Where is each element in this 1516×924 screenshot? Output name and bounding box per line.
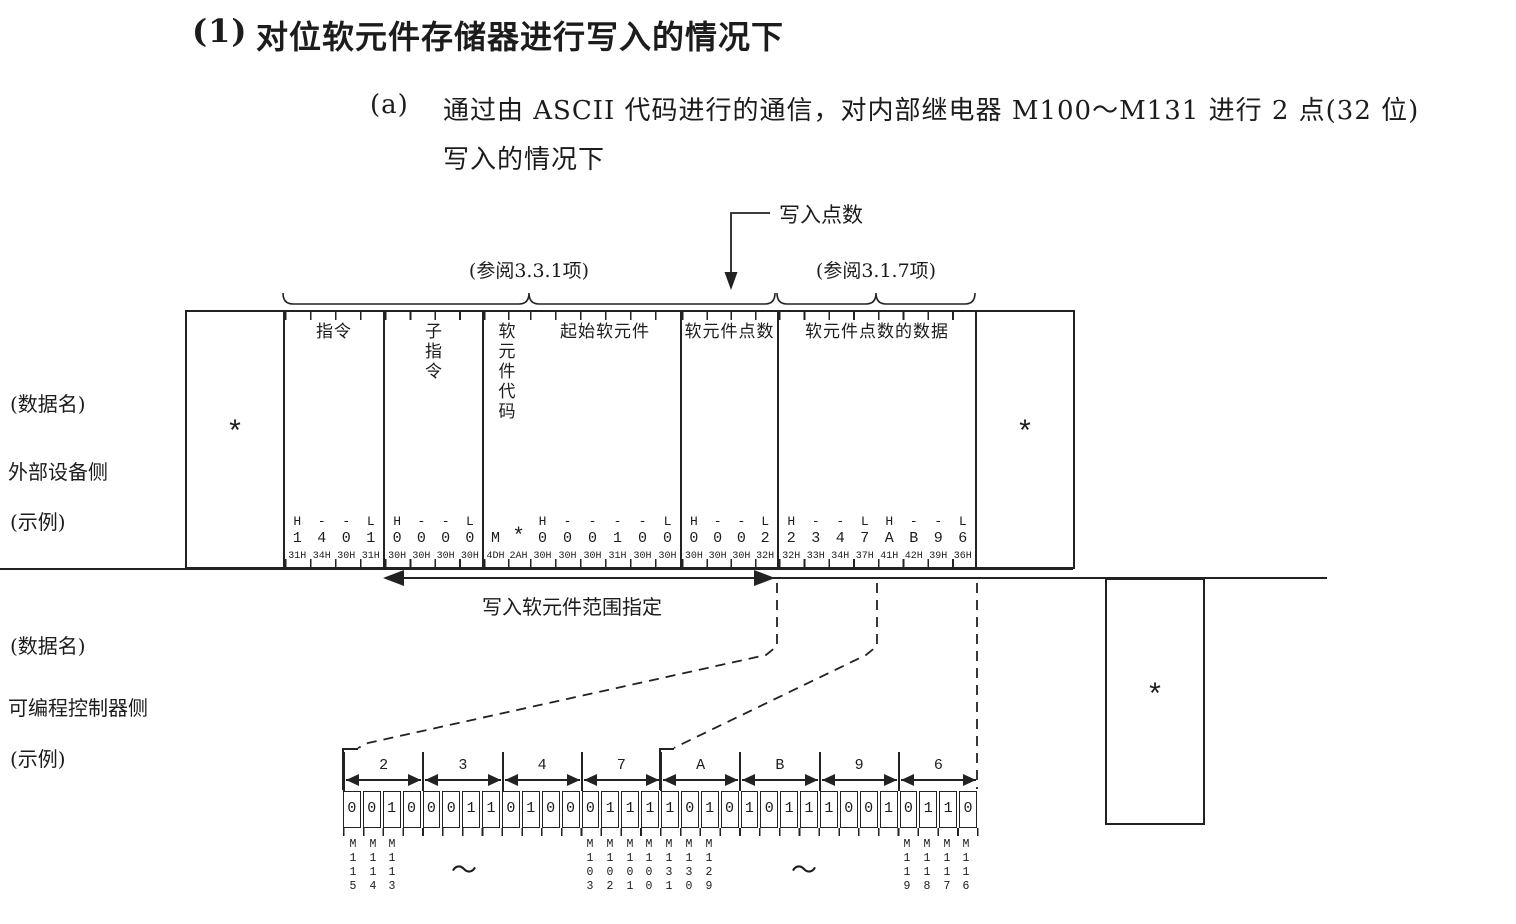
frame-column-leading: *	[187, 312, 283, 567]
bit-cell: 1	[601, 791, 619, 828]
asterisk: *	[187, 417, 283, 451]
bit-cell: 0	[442, 791, 460, 828]
column-header: 起始软元件	[530, 322, 680, 343]
device-label: M118	[917, 838, 937, 894]
bit-cell: 1	[939, 791, 957, 828]
bit-cell: 1	[621, 791, 639, 828]
char-cell: -434H	[828, 514, 853, 566]
column-example: M4DH *2AH	[484, 514, 530, 566]
char-cell: -030H	[630, 514, 655, 566]
manual-page: (1) 对位软元件存储器进行写入的情况下 (a) 通过由 ASCII 代码进行的…	[0, 0, 1516, 924]
char-cell: L232H	[753, 514, 777, 566]
asterisk: *	[977, 417, 1073, 451]
frame-column-trailing: *	[975, 312, 1073, 567]
frame-column-device-points: 软元件点数 H030H -030H -030H L232H	[680, 312, 777, 567]
bit-cell: 0	[900, 791, 918, 828]
char-cell: -939H	[926, 514, 951, 566]
bit-cell: 0	[562, 791, 580, 828]
char-cell: L030H	[655, 514, 680, 566]
char-cell: -030H	[409, 514, 433, 566]
char-cell: L131H	[359, 514, 384, 566]
bit-cell: 0	[681, 791, 699, 828]
char-cell: -B42H	[902, 514, 927, 566]
bit-group: 7	[583, 752, 662, 791]
message-frame-table: * 指令 H131H -434H -030H L131H 子指令 H030H -…	[185, 310, 1075, 569]
char-cell: H030H	[385, 514, 409, 566]
char-cell: -030H	[434, 514, 458, 566]
device-label: M130	[679, 838, 699, 894]
char-cell: -030H	[555, 514, 580, 566]
column-header: 软元件代码	[498, 322, 517, 422]
device-label: M102	[600, 838, 620, 894]
dashed-connector-mid	[674, 583, 877, 748]
bit-cell: 1	[482, 791, 500, 828]
bit-cell: 0	[760, 791, 778, 828]
bit-cell: 0	[860, 791, 878, 828]
group-span-arrow	[742, 779, 817, 781]
frame-column-points-data: 软元件点数的数据 H232H -333H -434H L737H HA41H -…	[777, 312, 975, 567]
bit-cell: 1	[383, 791, 401, 828]
group-span-arrow	[901, 779, 976, 781]
bit-cell: 1	[661, 791, 679, 828]
bit-cell: 0	[423, 791, 441, 828]
char-cell: -030H	[730, 514, 754, 566]
dashed-connector-left	[358, 583, 777, 748]
column-example: H030H -030H -030H -131H -030H L030H	[530, 514, 680, 566]
column-header: 指令	[285, 322, 383, 343]
bit-cell: 1	[919, 791, 937, 828]
asterisk: *	[1107, 680, 1203, 714]
bit-cell: 0	[840, 791, 858, 828]
bit-group-row: 2 3 4 7 A B 9 6	[343, 752, 977, 791]
plc-side-asterisk-box: *	[1105, 578, 1205, 825]
device-label: M116	[956, 838, 976, 894]
char-cell: *2AH	[507, 514, 530, 566]
char-cell: H030H	[682, 514, 706, 566]
bit-cell: 1	[780, 791, 798, 828]
group-span-arrow	[425, 779, 500, 781]
tilde-ellipsis: ～	[791, 850, 817, 887]
bit-group: 3	[424, 752, 503, 791]
column-example: H232H -333H -434H L737H HA41H -B42H -939…	[779, 514, 975, 566]
device-label: M115	[343, 838, 363, 894]
char-cell: L636H	[951, 514, 976, 566]
range-arrowhead-right	[754, 570, 775, 586]
char-cell: -333H	[804, 514, 829, 566]
range-arrowhead-left	[383, 570, 404, 586]
char-cell: -030H	[706, 514, 730, 566]
column-example: H030H -030H -030H L232H	[682, 514, 777, 566]
tilde-ellipsis: ～	[451, 850, 477, 887]
bit-cell: 1	[800, 791, 818, 828]
char-cell: L030H	[458, 514, 482, 566]
group-span-arrow	[822, 779, 897, 781]
group-span-arrow	[663, 779, 738, 781]
write-points-arrow-line	[731, 213, 770, 276]
bit-group: 9	[821, 752, 900, 791]
char-cell: -030H	[580, 514, 605, 566]
bit-cell: 1	[820, 791, 838, 828]
device-label: M114	[363, 838, 383, 894]
column-header: 子指令	[424, 322, 443, 382]
frame-column-head-device: 起始软元件 H030H -030H -030H -131H -030H L030…	[530, 312, 680, 567]
char-cell: H232H	[779, 514, 804, 566]
group-span-arrow	[584, 779, 659, 781]
char-cell: -434H	[310, 514, 335, 566]
char-cell: -030H	[334, 514, 359, 566]
bit-cell: 1	[880, 791, 898, 828]
bit-group: 4	[504, 752, 583, 791]
bit-cell: 1	[641, 791, 659, 828]
device-label: M103	[580, 838, 600, 894]
char-cell: M4DH	[484, 514, 507, 566]
bit-group: 6	[900, 752, 977, 791]
column-header: 软元件点数的数据	[779, 322, 975, 343]
frame-column-command: 指令 H131H -434H -030H L131H	[283, 312, 383, 567]
device-label: M100	[639, 838, 659, 894]
column-header: 软元件点数	[682, 322, 777, 343]
bit-cell: 0	[582, 791, 600, 828]
bit-cell: 0	[343, 791, 361, 828]
bit-cell: 0	[721, 791, 739, 828]
bit-cell: 0	[502, 791, 520, 828]
device-label: M117	[937, 838, 957, 894]
bit-group: A	[662, 752, 741, 791]
bit-cell: 0	[542, 791, 560, 828]
device-label: M119	[897, 838, 917, 894]
bit-cell-ticks	[343, 828, 979, 836]
bit-cell: 0	[959, 791, 977, 828]
frame-column-subcommand: 子指令 H030H -030H -030H L030H	[383, 312, 482, 567]
frame-column-device-code: 软元件代码 M4DH *2AH	[482, 312, 530, 567]
device-label: M129	[699, 838, 719, 894]
bit-cell: 1	[522, 791, 540, 828]
char-cell: L737H	[853, 514, 878, 566]
bit-cell-row: 0 0 1 0 0 0 1 1 0 1 0 0 0 1 1 1 1 0 1 0 …	[343, 791, 977, 828]
bit-cell: 0	[363, 791, 381, 828]
device-label: M113	[382, 838, 402, 894]
char-cell: H131H	[285, 514, 310, 566]
bit-cell: 1	[701, 791, 719, 828]
brace-left	[283, 293, 775, 304]
group-span-arrow	[505, 779, 580, 781]
write-points-arrowhead	[725, 272, 738, 290]
bit-cell: 1	[741, 791, 759, 828]
brace-right	[777, 293, 975, 304]
device-label: M101	[620, 838, 640, 894]
column-example: H131H -434H -030H L131H	[285, 514, 383, 566]
bit-cell: 0	[403, 791, 421, 828]
device-label: M131	[659, 838, 679, 894]
char-cell: -131H	[605, 514, 630, 566]
char-cell: HA41H	[877, 514, 902, 566]
bit-group: 2	[343, 752, 424, 791]
bit-cell: 1	[462, 791, 480, 828]
group-span-arrow	[346, 779, 421, 781]
column-example: H030H -030H -030H L030H	[385, 514, 482, 566]
bit-group: B	[741, 752, 820, 791]
char-cell: H030H	[530, 514, 555, 566]
